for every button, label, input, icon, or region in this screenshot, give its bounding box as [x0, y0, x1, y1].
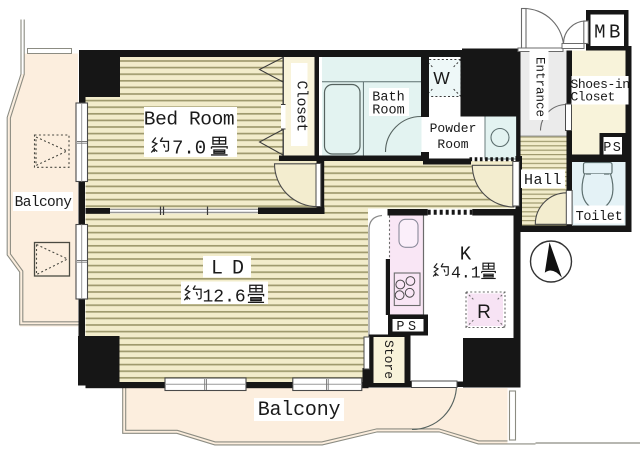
svg-text:Room: Room — [372, 104, 404, 119]
svg-text:Toilet: Toilet — [576, 210, 623, 225]
svg-text:Closet: Closet — [293, 81, 310, 132]
svg-text:Store: Store — [381, 340, 396, 379]
svg-text:7.0: 7.0 — [172, 138, 206, 160]
svg-text:4.1: 4.1 — [451, 264, 481, 283]
svg-text:Room: Room — [437, 137, 468, 152]
svg-text:LD: LD — [211, 258, 253, 281]
svg-text:MB: MB — [594, 22, 624, 44]
svg-text:Hall: Hall — [524, 172, 562, 189]
svg-text:Closet: Closet — [571, 90, 615, 105]
svg-text:12.6: 12.6 — [203, 288, 246, 308]
svg-text:W: W — [433, 68, 450, 88]
svg-text:Entrance: Entrance — [533, 57, 547, 117]
svg-text:Powder: Powder — [430, 121, 477, 136]
svg-text:Balcony: Balcony — [15, 195, 73, 211]
svg-text:PS: PS — [603, 141, 622, 156]
svg-text:Balcony: Balcony — [258, 399, 341, 422]
svg-text:Bed Room: Bed Room — [144, 109, 234, 131]
svg-text:R: R — [477, 302, 491, 323]
svg-text:PS: PS — [396, 320, 419, 335]
